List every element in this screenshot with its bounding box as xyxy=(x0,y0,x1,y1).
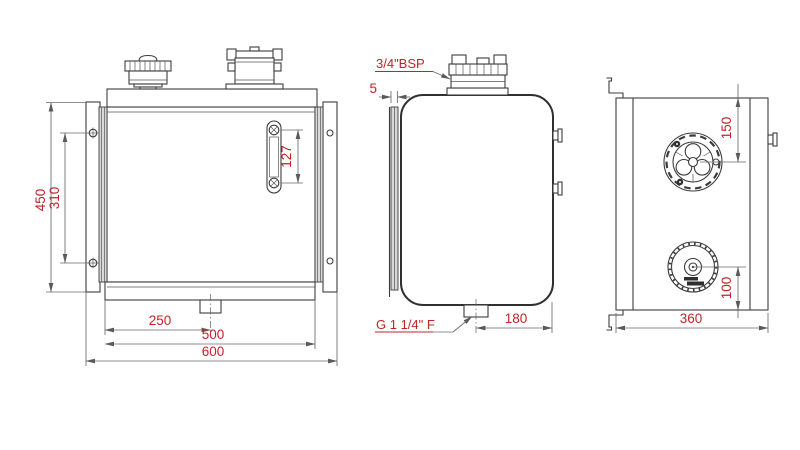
dim-overall-width: 600 xyxy=(202,344,225,359)
dim-cap-from-bottom: 100 xyxy=(719,277,734,300)
side-filler-cap xyxy=(447,55,508,95)
front-tank-body xyxy=(107,107,315,282)
bottom-left-bracket xyxy=(607,310,624,330)
dim-bracket-gap: 5 xyxy=(369,81,377,96)
dim-base-width: 500 xyxy=(202,327,225,342)
label-filler-thread: 3/4"BSP xyxy=(376,56,425,71)
side-view: 3/4"BSP 5 G 1 1/4" F 180 xyxy=(369,55,562,333)
drawing-canvas: 450 310 127 250 500 600 xyxy=(0,0,800,450)
dim-hole-spacing: 310 xyxy=(47,187,62,210)
side-tank-body xyxy=(401,95,553,305)
front-top-plate xyxy=(107,89,317,107)
top-left-bracket xyxy=(607,78,624,98)
dim-drain-to-edge: 180 xyxy=(505,311,528,326)
return-flange-assembly xyxy=(226,47,283,89)
top-right-port xyxy=(768,133,777,146)
front-bottom-band xyxy=(105,282,315,300)
dim-overall-height: 450 xyxy=(33,189,48,212)
dim-flange-from-top: 150 xyxy=(719,117,734,140)
breather-cap xyxy=(125,56,171,90)
front-view: 450 310 127 250 500 600 xyxy=(33,47,337,366)
dim-sight-glass-length: 127 xyxy=(279,145,294,168)
top-view: 150 100 360 xyxy=(607,78,778,333)
label-drain-thread: G 1 1/4" F xyxy=(376,317,435,332)
dim-drain-offset: 250 xyxy=(149,313,172,328)
dim-depth: 360 xyxy=(680,311,703,326)
technical-drawing: 450 310 127 250 500 600 xyxy=(0,0,800,450)
side-ports xyxy=(553,129,562,195)
